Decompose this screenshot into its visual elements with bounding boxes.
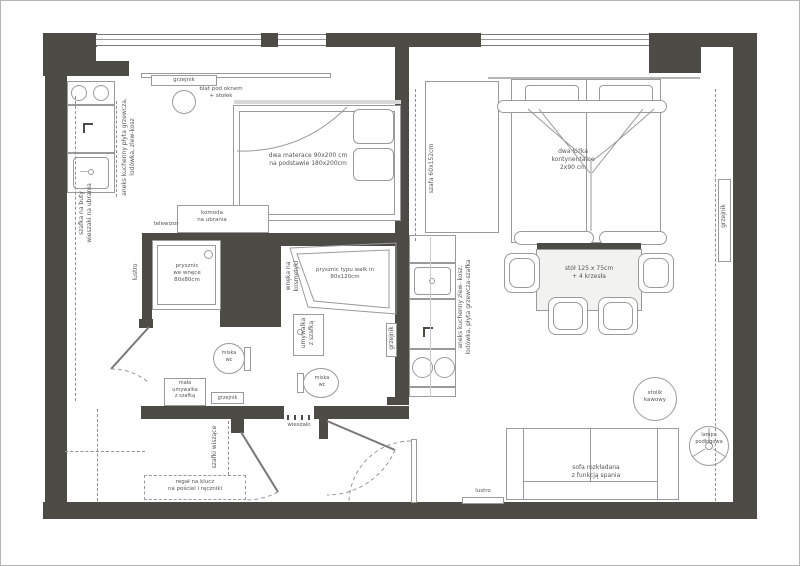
bed-left-label: dwa materace 90x200 cm na podstawie 180x…	[243, 152, 373, 168]
counter-right-top	[409, 235, 456, 263]
burner-icon	[71, 85, 87, 101]
wall-bath-block	[220, 233, 281, 327]
radiator-bath-center-label: grzejnik	[388, 322, 396, 354]
dashed-line	[65, 451, 145, 452]
corner-mark-icon	[423, 327, 425, 337]
wall-left	[45, 33, 67, 502]
mirror-bottom	[462, 497, 504, 504]
burner-icon	[434, 357, 455, 378]
dashed-line	[715, 89, 716, 501]
tv-label: telewizor	[148, 221, 184, 228]
wall-divider-foot	[387, 397, 395, 405]
counter-right-mid	[409, 299, 456, 349]
pillow-icon	[353, 109, 394, 144]
dresser-label: komoda na ubrania	[185, 210, 239, 224]
chair-inner	[509, 258, 535, 288]
toilet-center-tank	[297, 373, 304, 393]
wall-bath-left	[142, 246, 152, 323]
wardrobe	[425, 81, 499, 233]
door-hall	[241, 432, 278, 500]
wall-corner-top-right	[649, 47, 701, 73]
dashed-line	[97, 409, 98, 501]
kitchen-right-label: aneks kuchenny zlew- kosz, lodówka, płyt…	[457, 233, 472, 381]
hook-icon	[308, 415, 310, 420]
radiator-right-label: grzejnik	[720, 182, 728, 250]
dashed-line	[75, 96, 76, 401]
wall-top-pier	[261, 33, 278, 47]
door-left-bathroom	[111, 327, 149, 383]
wall-right	[733, 33, 757, 519]
floor-lamp-label: lampa podłogowa	[687, 432, 731, 445]
counter-depth-line	[430, 237, 431, 397]
hook-icon	[294, 415, 296, 420]
wall-bath-door-post	[139, 319, 153, 328]
bed-shelf-line	[234, 100, 401, 104]
sofa-label: sofa rozkładana z funkcją spania	[539, 464, 653, 480]
wc-left-label: miska wc	[214, 350, 244, 363]
toilet-left-tank	[244, 347, 251, 371]
wardrobe-label: szafa 60x152cm	[428, 121, 436, 216]
faucet-line	[80, 171, 89, 172]
window-kitchen	[96, 34, 141, 46]
radiator-window-label: grzejnik	[151, 77, 217, 84]
door-center-bathroom	[327, 421, 395, 495]
wall-stub-hall-left	[231, 419, 244, 433]
coffee-table-label: stolik kawowy	[635, 390, 675, 404]
small-sink-label: mała umywalka z szafką	[165, 380, 205, 400]
chair-inner	[603, 302, 633, 330]
window-bedroom-2	[278, 34, 326, 46]
mirror-bottom-label: lustro	[467, 488, 499, 495]
shower-head-icon	[204, 250, 213, 259]
floor-plan: grzejnik blat pod oknem + stołek aneks k…	[0, 0, 800, 566]
table-label: stół 125 x 75cm + 4 krzesła	[553, 265, 625, 281]
hall-shelf-label: regał na klucz na pościel i ręczniki	[147, 479, 243, 493]
window-living	[481, 34, 649, 46]
dashed-line	[228, 421, 229, 475]
shower-niche-label: prysznic we wnęce 80x80cm	[155, 263, 219, 284]
hanging-cabinets-label: szafki wiszące	[211, 422, 219, 472]
window-bedroom-1	[141, 34, 261, 46]
door-leaf-living	[411, 439, 417, 503]
chair-inner	[643, 258, 669, 288]
hook-icon	[301, 415, 303, 420]
walkin-label: prysznic typu walk in 80x120cm	[303, 267, 387, 281]
door-living-arc	[349, 441, 411, 503]
sofa-seat-line	[524, 481, 657, 482]
kitchen-left-label: aneks kuchenny płyta grzewcza, lodówka, …	[121, 91, 136, 203]
wc-center-label: miska wc	[306, 375, 338, 388]
worktop-label: blat pod oknem + stołek	[185, 86, 257, 100]
cosmetics-niche-label: wnęka na kosmetyki	[285, 247, 300, 305]
shoe-cabinet-label: szafka na buty wieszaki na ubrania	[78, 183, 93, 243]
wall-sill-block	[96, 61, 129, 76]
wall-top-2	[326, 33, 481, 47]
radiator-bath-left-label: grzejnik	[211, 395, 244, 402]
sink-center-label: umywalka z szafką	[300, 314, 315, 352]
sofa-arm-line	[657, 429, 658, 499]
wall-bath-bottom-right	[314, 406, 409, 419]
wall-bath-bottom-left	[141, 406, 284, 419]
counter-right-bottom	[409, 387, 456, 397]
chair-inner	[553, 302, 583, 330]
dashed-line	[415, 89, 416, 241]
sofa-arm-line	[523, 429, 524, 499]
bed-right-label: dwa łóżka kontynentalne 2x90 cm	[534, 148, 612, 171]
bed-bolster	[497, 100, 667, 113]
hooks-label: wieszaki	[283, 422, 315, 429]
dashed-line	[116, 101, 117, 197]
burner-icon	[93, 85, 109, 101]
wall-bottom	[43, 502, 757, 519]
hook-icon	[287, 415, 289, 420]
wall-stub-hall-right	[319, 419, 328, 439]
corner-mark-icon	[83, 123, 85, 133]
mirror-left-label: lustro	[132, 259, 140, 285]
faucet-icon	[88, 169, 94, 175]
